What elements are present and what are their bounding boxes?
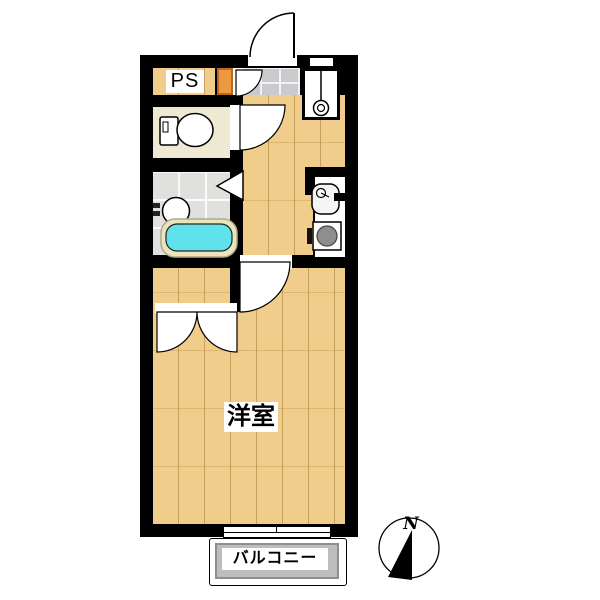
window-center-tick	[276, 527, 277, 532]
compass-icon: N	[374, 507, 448, 589]
genkan-door-swing	[233, 67, 265, 99]
room-door-swing	[238, 253, 296, 315]
kitchen-sink-icon	[311, 183, 347, 216]
western-room-label: 洋室	[224, 402, 278, 432]
pipe-space-label: PS	[166, 70, 204, 93]
gas-stove-icon	[307, 221, 345, 252]
toilet-door-swing	[228, 103, 290, 155]
compass-north-label: N	[402, 514, 420, 534]
entrance-door-swing	[245, 8, 301, 70]
bath-folding-door-icon	[214, 168, 246, 203]
balcony-label: バルコニー	[222, 548, 328, 570]
window-track-line	[224, 532, 330, 533]
toilet-icon	[155, 108, 227, 156]
sliding-window	[223, 526, 331, 538]
top-window	[309, 57, 334, 67]
shoe-box	[217, 68, 233, 95]
closet-double-door-swing	[153, 301, 241, 355]
floor-plan-canvas: クローゼット	[0, 0, 600, 600]
washer-drain-icon	[302, 68, 340, 120]
